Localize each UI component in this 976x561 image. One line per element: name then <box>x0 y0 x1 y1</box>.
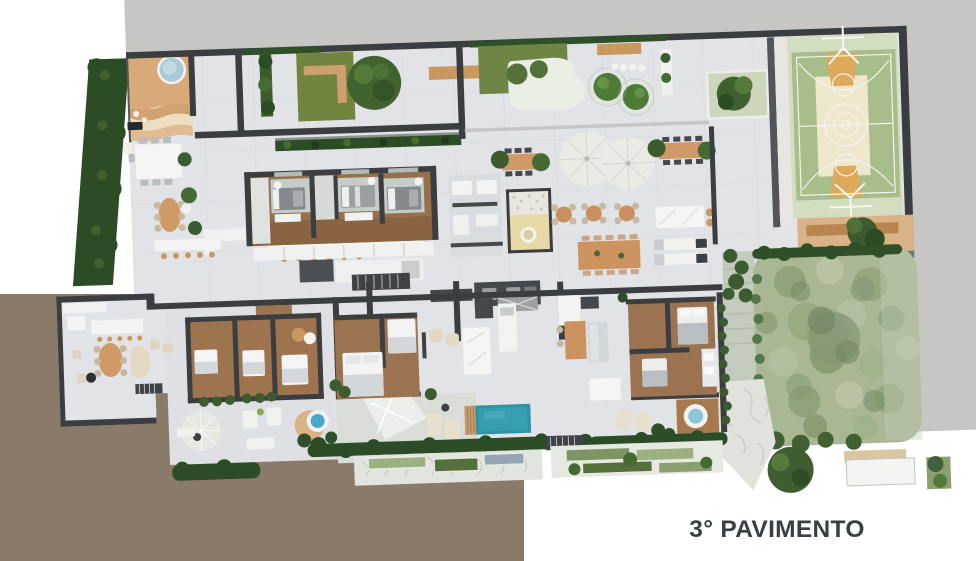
svg-text:3° PAVIMENTO: 3° PAVIMENTO <box>689 516 864 543</box>
